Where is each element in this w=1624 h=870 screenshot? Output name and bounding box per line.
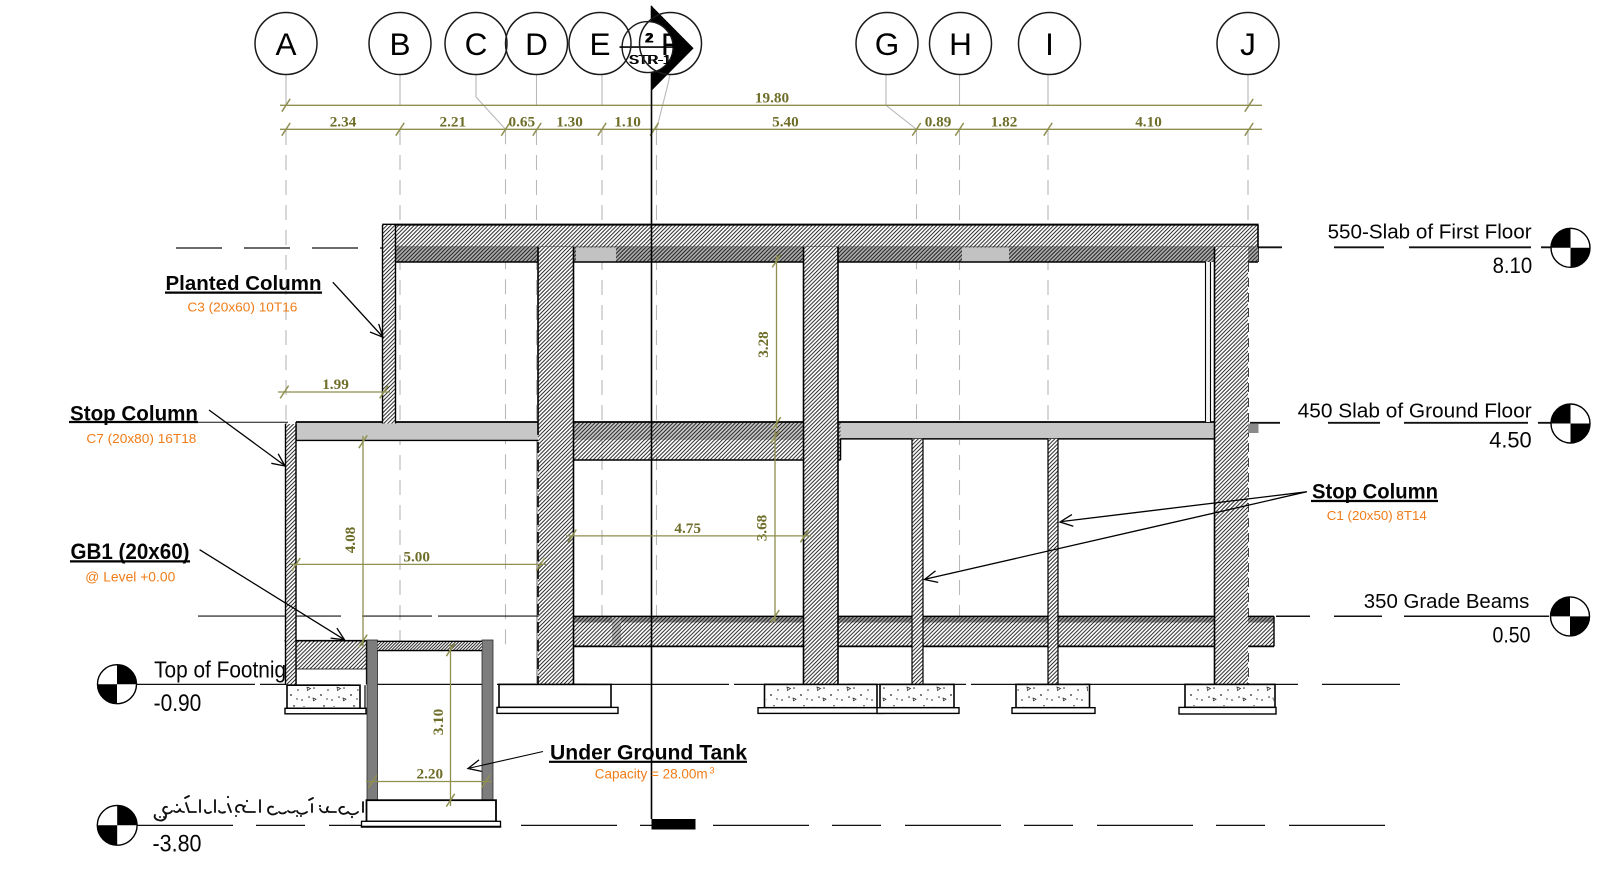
svg-text:1.10: 1.10 [614, 113, 641, 130]
svg-text:1.82: 1.82 [991, 113, 1018, 130]
svg-text:C1 (20x50) 8T14: C1 (20x50) 8T14 [1327, 508, 1427, 523]
svg-text:D: D [525, 26, 548, 62]
svg-text:2.34: 2.34 [330, 113, 357, 130]
svg-text:-3.80: -3.80 [153, 831, 202, 858]
svg-text:0.50: 0.50 [1493, 622, 1531, 647]
svg-text:350 Grade Beams: 350 Grade Beams [1364, 591, 1530, 613]
svg-text:19.80: 19.80 [755, 89, 790, 106]
svg-text:4.08: 4.08 [342, 526, 359, 553]
svg-text:5.00: 5.00 [403, 548, 430, 565]
svg-text:4.50: 4.50 [1489, 428, 1532, 453]
svg-text:F: F [661, 26, 680, 62]
svg-text:3.68: 3.68 [754, 514, 771, 541]
svg-text:G: G [875, 26, 900, 62]
svg-text:4.10: 4.10 [1135, 113, 1162, 130]
svg-text:450 Slab of Ground Floor: 450 Slab of Ground Floor [1298, 400, 1532, 422]
svg-text:550-Slab of First Floor: 550-Slab of First Floor [1328, 222, 1532, 244]
svg-text:Capacity = 28.00m: Capacity = 28.00m [595, 767, 708, 783]
svg-text:H: H [949, 26, 972, 62]
svg-text:GB1 (20x60): GB1 (20x60) [71, 539, 190, 564]
svg-text:8.10: 8.10 [1493, 253, 1533, 278]
svg-text:I: I [1045, 26, 1054, 62]
svg-text:3: 3 [710, 766, 715, 776]
svg-text:1.99: 1.99 [322, 376, 349, 393]
svg-text:-0.90: -0.90 [154, 690, 202, 717]
svg-text:2: 2 [646, 31, 654, 46]
svg-text:@ Level +0.00: @ Level +0.00 [85, 569, 175, 584]
svg-text:2.21: 2.21 [440, 113, 467, 130]
svg-text:3.28: 3.28 [755, 331, 772, 358]
svg-text:A: A [275, 26, 296, 62]
svg-text:0.65: 0.65 [509, 113, 536, 130]
svg-text:2.20: 2.20 [417, 766, 444, 783]
svg-text:1.30: 1.30 [556, 113, 583, 130]
svg-text:J: J [1240, 26, 1256, 62]
svg-text:C7 (20x80) 16T18: C7 (20x80) 16T18 [86, 431, 196, 446]
svg-text:4.75: 4.75 [674, 520, 701, 537]
svg-text:C: C [465, 26, 488, 62]
svg-text:B: B [389, 26, 410, 62]
svg-text:Top of Footnig: Top of Footnig [154, 657, 286, 683]
svg-text:E: E [589, 26, 610, 62]
svg-text:0.89: 0.89 [925, 113, 952, 130]
svg-text:C3 (20x60) 10T16: C3 (20x60) 10T16 [187, 300, 297, 315]
svg-text:3.10: 3.10 [430, 708, 447, 735]
svg-text:5.40: 5.40 [772, 113, 799, 130]
